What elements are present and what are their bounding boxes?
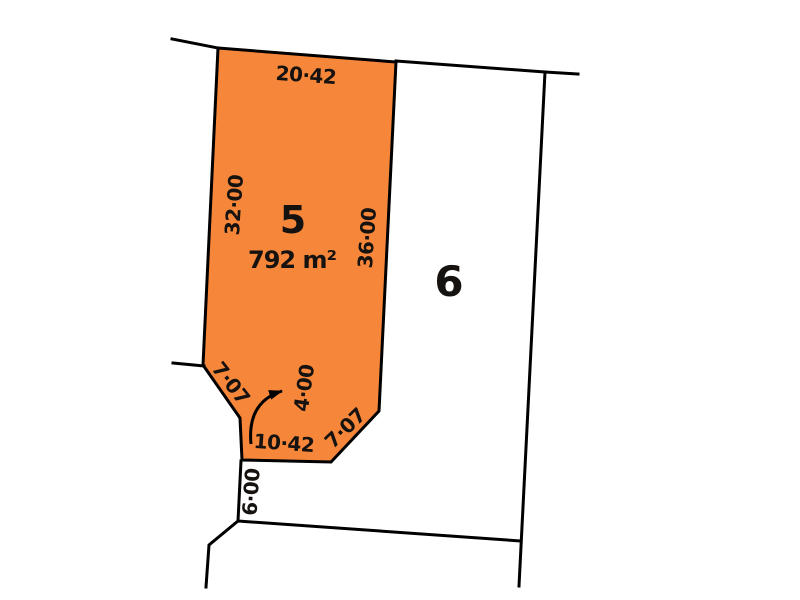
lot-5-number: 5 xyxy=(280,198,306,242)
lot-6-number: 6 xyxy=(434,257,463,306)
dim-bottom: 10·42 xyxy=(253,429,315,457)
dim-below-lot5: 6·00 xyxy=(237,468,264,517)
plan-background xyxy=(0,0,800,600)
survey-plan: 5 792 m² 6 20·42 32·00 36·00 7·07 4·00 1… xyxy=(0,0,800,600)
dim-right: 36·00 xyxy=(353,207,381,269)
dim-top: 20·42 xyxy=(275,61,337,89)
survey-plan-svg: 5 792 m² 6 20·42 32·00 36·00 7·07 4·00 1… xyxy=(0,0,800,600)
dim-left: 32·00 xyxy=(220,174,248,236)
lot-5-area: 792 m² xyxy=(248,246,336,274)
